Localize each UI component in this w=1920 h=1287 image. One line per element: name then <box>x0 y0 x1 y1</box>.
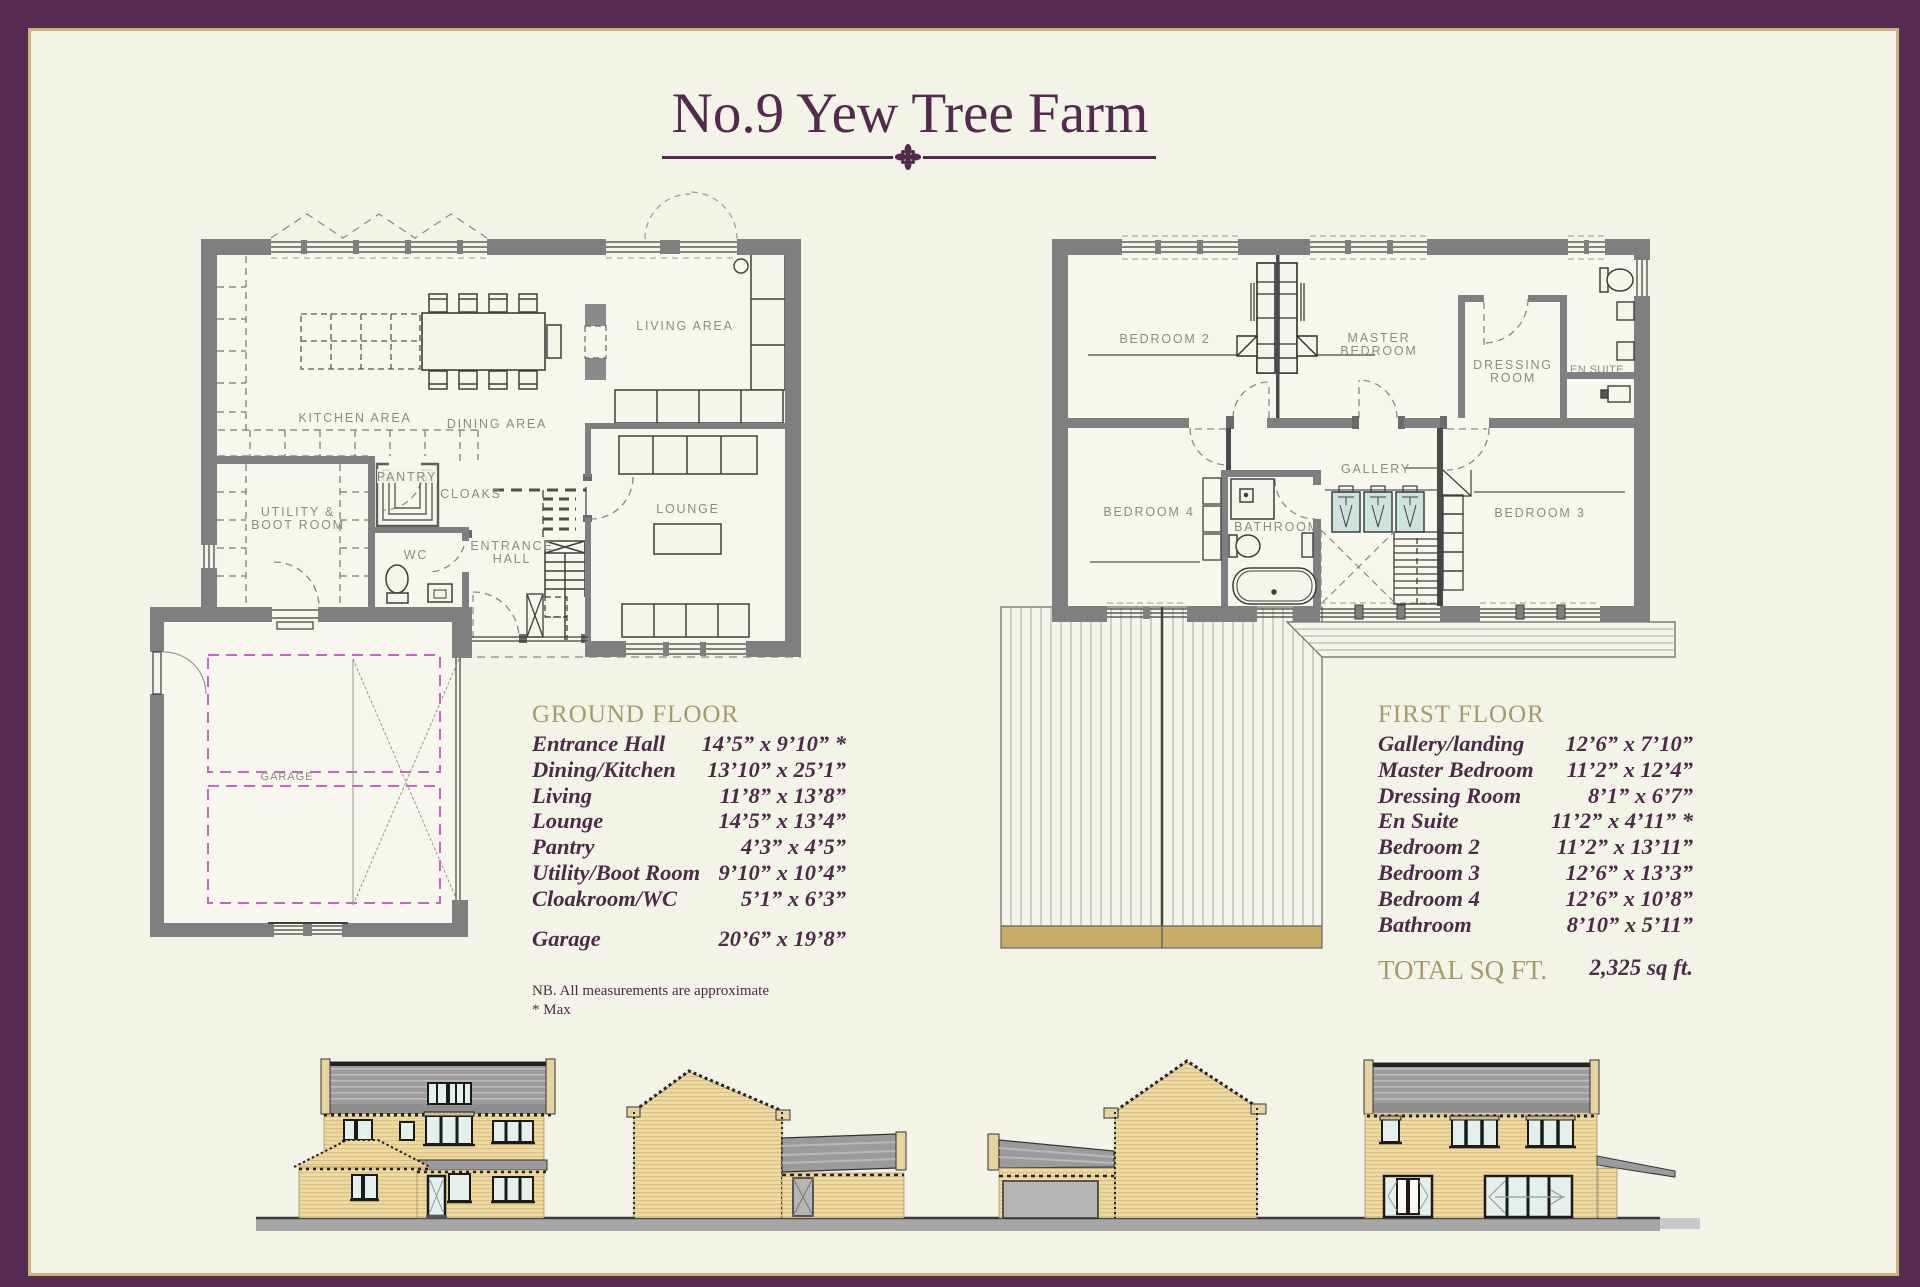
svg-text:BEDROOM: BEDROOM <box>1340 344 1417 358</box>
svg-text:CLOAKS: CLOAKS <box>440 487 502 501</box>
svg-text:GARAGE: GARAGE <box>260 771 313 783</box>
svg-text:BOOT ROOM: BOOT ROOM <box>251 518 345 532</box>
svg-text:BEDROOM 4: BEDROOM 4 <box>1103 505 1194 519</box>
svg-text:BATHROOM: BATHROOM <box>1234 520 1320 534</box>
svg-text:ENTRANCE: ENTRANCE <box>470 539 553 553</box>
svg-text:WC: WC <box>404 548 428 562</box>
svg-text:BEDROOM 3: BEDROOM 3 <box>1494 506 1585 520</box>
svg-text:EN SUITE: EN SUITE <box>1570 364 1624 376</box>
svg-text:DRESSING: DRESSING <box>1473 358 1553 372</box>
svg-text:HALL: HALL <box>493 552 531 566</box>
svg-text:MASTER: MASTER <box>1348 331 1411 345</box>
svg-text:PANTRY: PANTRY <box>377 470 437 484</box>
svg-text:KITCHEN AREA: KITCHEN AREA <box>298 411 411 425</box>
svg-text:UTILITY &: UTILITY & <box>261 505 335 519</box>
svg-text:GALLERY: GALLERY <box>1341 462 1411 476</box>
svg-text:LOUNGE: LOUNGE <box>656 502 720 516</box>
svg-text:DINING AREA: DINING AREA <box>447 417 547 431</box>
svg-text:BEDROOM 2: BEDROOM 2 <box>1119 332 1210 346</box>
svg-text:LIVING AREA: LIVING AREA <box>636 319 734 333</box>
svg-text:ROOM: ROOM <box>1490 371 1536 385</box>
